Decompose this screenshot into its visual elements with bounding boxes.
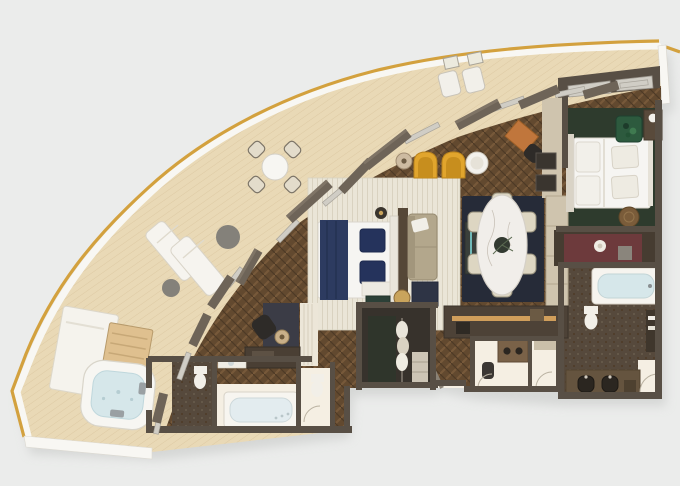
toilet <box>311 381 323 397</box>
guest-bathtub: Bathtub <box>224 392 298 428</box>
cushion <box>611 145 638 169</box>
wall <box>558 262 662 268</box>
wall <box>358 382 438 388</box>
bar-sink <box>530 309 544 321</box>
vanity-tray <box>624 380 636 392</box>
wall-box <box>536 153 556 169</box>
room-walk-in-closet: Walk-in closet <box>362 308 434 386</box>
wall-box <box>536 175 556 191</box>
wall <box>655 100 662 398</box>
towel <box>648 316 656 320</box>
closet-green-panel <box>368 316 396 386</box>
wall <box>470 336 562 341</box>
wall <box>358 302 438 308</box>
pillow <box>576 176 600 205</box>
master-toilet: Toilet <box>584 306 598 330</box>
hanging-clothes <box>396 353 408 371</box>
tub-seat <box>110 409 125 417</box>
deck-side-table <box>443 56 459 70</box>
wall <box>558 262 564 398</box>
navy-pillow <box>360 261 385 284</box>
pouf: Pouf <box>619 207 639 227</box>
towel <box>648 326 656 330</box>
wall <box>464 386 564 392</box>
floor-plan-svg: Wrap-around balcony Outdoor dining set S… <box>0 0 680 486</box>
navy-pillow <box>360 229 385 252</box>
wall <box>558 392 662 399</box>
wall <box>556 226 662 232</box>
wall <box>430 302 436 390</box>
room-bar: Bar / pantry <box>444 306 568 338</box>
cushion <box>611 175 638 199</box>
wall <box>146 426 352 433</box>
wall <box>212 362 217 428</box>
bar-appliance <box>456 322 470 334</box>
side-table-gray <box>216 225 240 249</box>
hanging-clothes <box>397 337 409 355</box>
powder-vanity <box>498 340 528 362</box>
closet-shelves <box>412 352 428 384</box>
faucet <box>608 375 611 378</box>
hot-tub: Hot tub <box>79 358 158 431</box>
wall <box>356 302 362 390</box>
headboard <box>390 216 398 302</box>
wall <box>296 362 301 428</box>
hanging-clothes <box>396 321 408 339</box>
entry-cabinet <box>534 340 558 350</box>
floor-plan-image: Wrap-around balcony Outdoor dining set S… <box>0 0 680 486</box>
wall <box>146 358 152 388</box>
dining-table: Dining table <box>477 195 527 295</box>
tub-faucet <box>648 284 652 288</box>
dresser-unit: Dresser <box>554 230 658 266</box>
side-table-white <box>362 282 390 296</box>
pillow <box>576 142 600 172</box>
deck-side-table <box>467 52 483 66</box>
dresser-box <box>618 246 632 260</box>
wall <box>330 362 335 428</box>
wall <box>344 386 350 432</box>
wall <box>470 336 475 390</box>
master-bathtub: Bathtub <box>592 268 660 304</box>
faucet <box>584 375 587 378</box>
master-bed: King bed <box>566 134 653 212</box>
wall <box>434 380 466 386</box>
wall <box>148 356 312 362</box>
navy-throw <box>320 220 348 300</box>
wall <box>528 338 532 390</box>
sofa: Sofa <box>408 214 437 280</box>
wall <box>562 92 568 168</box>
side-table-gray <box>162 279 180 297</box>
plant-table: Plant <box>616 116 642 142</box>
tub-handle <box>138 382 146 395</box>
footboard <box>648 140 653 206</box>
outdoor-table <box>262 154 288 180</box>
